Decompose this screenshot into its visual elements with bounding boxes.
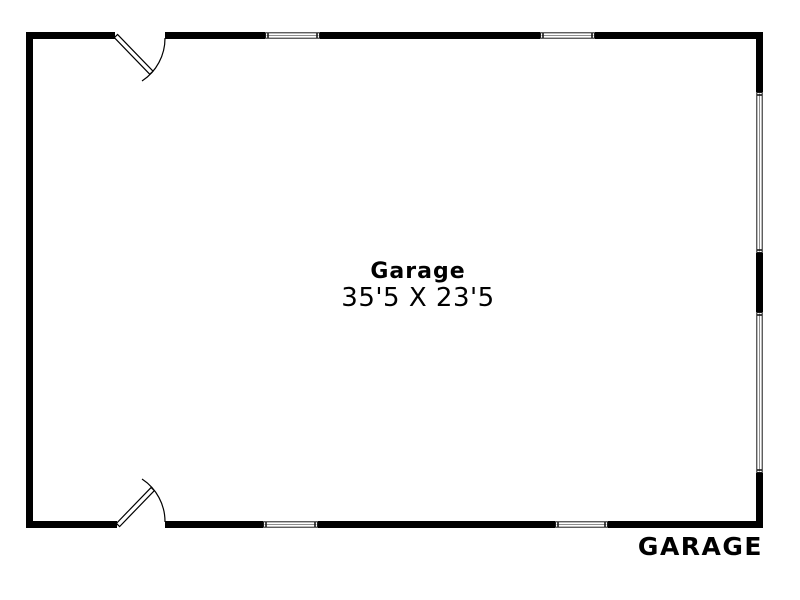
wall-right-segment (756, 473, 763, 528)
wall-top-segment (165, 32, 265, 39)
door-top-left (114, 34, 165, 81)
plan-title-label: GARAGE (638, 534, 763, 560)
wall-right-segment (756, 253, 763, 312)
wall-bottom-segment (318, 521, 555, 528)
wall-top-segment (26, 32, 115, 39)
door-bottom-left (116, 479, 165, 527)
wall-bottom-segment (165, 521, 263, 528)
window-top-1 (266, 33, 320, 38)
room-dimensions-label: 35'5 X 23'5 (341, 285, 494, 312)
wall-top-segment (320, 32, 540, 39)
wall-top-segment (595, 32, 763, 39)
door-leaf (116, 487, 154, 526)
window-right-1 (757, 93, 762, 253)
floorplan-page: Garage 35'5 X 23'5 GARAGE (0, 0, 800, 600)
wall-bottom-segment (26, 521, 117, 528)
door-leaf (114, 34, 153, 74)
wall-bottom-segment (608, 521, 763, 528)
window-top-2 (541, 33, 595, 38)
window-bottom-2 (556, 522, 608, 527)
wall-left (26, 32, 33, 528)
wall-right-segment (756, 32, 763, 92)
window-bottom-1 (264, 522, 318, 527)
room-name-label: Garage (370, 260, 465, 284)
window-right-2 (757, 313, 762, 473)
door-swing-arc (142, 38, 165, 81)
